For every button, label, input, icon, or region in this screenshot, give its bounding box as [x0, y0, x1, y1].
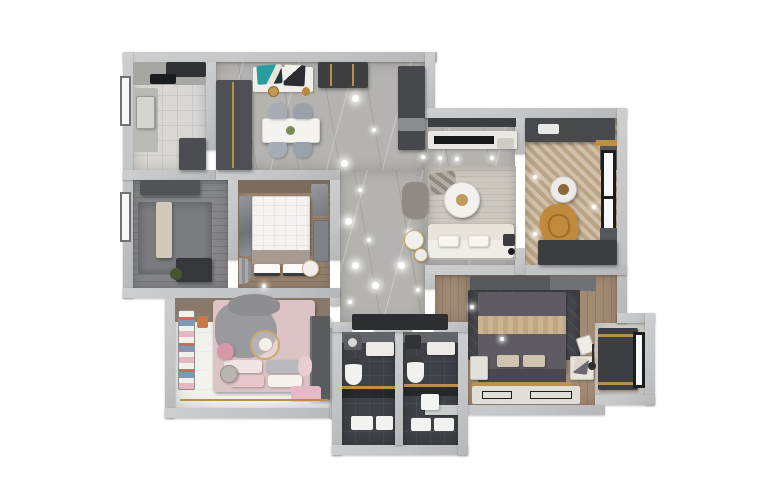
kids-toy-shelf — [178, 310, 195, 390]
spotlight-icon — [533, 232, 537, 236]
wall-living-top — [425, 108, 627, 118]
living-lamp-table — [503, 234, 515, 246]
bay-window-seat — [598, 328, 638, 390]
entry-cabinet-niche — [398, 118, 425, 131]
spotlight-icon — [470, 305, 474, 309]
bath1-mat — [376, 416, 393, 430]
wine-cabinet-trim — [232, 82, 234, 168]
kids-side-table — [220, 365, 238, 383]
wall-master-corridor — [330, 180, 340, 260]
spotlight-icon — [352, 262, 359, 269]
spotlight-icon — [262, 284, 266, 288]
top-cabinet-trim — [330, 64, 332, 86]
bath1-mat — [351, 416, 373, 430]
living-side-table-small — [414, 248, 428, 262]
wall-bath-left — [332, 322, 342, 455]
spotlight-icon — [352, 95, 359, 102]
walkway-rug-outline — [530, 391, 572, 399]
bay-lamp-stem — [592, 344, 594, 364]
bath1-shower-glass — [342, 389, 395, 398]
study-top-shelf — [140, 180, 200, 195]
spotlight-icon — [372, 282, 379, 289]
living-floor-lamp — [508, 248, 515, 255]
spotlight-icon — [533, 175, 537, 179]
master-bed — [252, 196, 310, 256]
wall-living-bedroom2 — [425, 265, 627, 275]
master-mirror-panel — [239, 196, 252, 256]
sideboard-vase — [302, 87, 310, 96]
entry-cabinet — [398, 66, 425, 150]
bath2-mat — [411, 418, 431, 431]
kids-canopy — [228, 294, 280, 316]
bedroom2-nightstand — [470, 356, 488, 380]
wall-bay-bottom — [595, 395, 655, 405]
spotlight-icon — [500, 337, 504, 341]
spotlight-icon — [358, 188, 362, 192]
master-pillow — [254, 264, 280, 276]
wall-top — [123, 52, 437, 62]
master-wardrobe — [313, 220, 329, 262]
balcony-bottom-cabinet — [538, 240, 617, 265]
wall-bedroom2-left-stub — [425, 275, 435, 289]
master-nightstand — [302, 260, 319, 277]
dining-centerpiece — [286, 126, 295, 135]
bath2-toilet — [407, 356, 424, 383]
wall-living-balcony-bottom — [515, 248, 525, 275]
spotlight-icon — [592, 205, 596, 209]
corridor-doormat — [352, 314, 448, 330]
balcony-cabinet-sink — [538, 124, 559, 134]
kids-plush-toy — [258, 337, 273, 352]
wall-study-master — [228, 180, 238, 260]
sofa-pillow — [438, 235, 459, 247]
kitchen-sink — [136, 96, 155, 129]
kids-pouf — [217, 343, 234, 360]
wall-kids-corridor-stub — [330, 298, 340, 306]
spotlight-icon — [455, 157, 459, 161]
kids-floor-trim — [180, 399, 328, 401]
kitchen-fridge — [179, 138, 206, 170]
spotlight-icon — [345, 218, 352, 225]
bath2-vanity — [427, 342, 455, 355]
spotlight-icon — [490, 156, 494, 160]
wall-bath-mid — [395, 332, 403, 445]
study-cabinet — [156, 202, 172, 258]
floor-plan-canvas — [0, 0, 780, 490]
study-plant — [170, 268, 182, 280]
wall-balcony-right — [617, 108, 627, 323]
bedroom2-bed-band — [478, 316, 566, 334]
wall-kids-left — [165, 298, 175, 418]
bedroom2-pillow — [497, 355, 519, 367]
dining-chair — [268, 103, 287, 119]
bedroom2-desk — [550, 276, 596, 291]
sofa-pillow — [468, 235, 489, 247]
bath1-sink-bowl — [348, 338, 357, 347]
living-armchair — [402, 182, 428, 218]
wall-kitchen-dining — [206, 62, 216, 150]
spotlight-icon — [341, 160, 348, 167]
wall-bath-right — [458, 322, 468, 455]
kitchen-cooktop — [150, 74, 176, 84]
wall-kids-bottom — [165, 408, 340, 418]
wall-bay-right — [645, 313, 655, 405]
sideboard-gold-tray — [268, 86, 279, 97]
sideboard-art-teal — [256, 64, 282, 85]
dining-top-cabinet — [318, 62, 368, 88]
kids-bunny-toy — [298, 356, 312, 376]
sideboard-art-dark — [283, 64, 305, 86]
spotlight-icon — [398, 262, 405, 269]
study-desk — [176, 258, 212, 282]
kitchen-window — [120, 76, 131, 126]
living-console-items — [497, 138, 514, 149]
wall-mid-horizontal — [123, 288, 340, 298]
spotlight-icon — [438, 156, 442, 160]
spotlight-icon — [367, 238, 371, 242]
bay-seat-trim — [598, 334, 638, 337]
bay-window — [633, 332, 645, 388]
master-bed-foot-band — [252, 250, 310, 264]
wall-bedroom2-bottom — [425, 405, 605, 415]
wall-bath-top-a — [332, 322, 352, 332]
bath2-mat — [434, 418, 454, 431]
living-side-table — [404, 230, 424, 250]
balcony-window-mullion — [601, 196, 616, 199]
study-window — [120, 192, 131, 242]
wall-bath-bottom — [332, 445, 468, 455]
spotlight-icon — [348, 300, 352, 304]
spotlight-icon — [421, 155, 425, 159]
dining-wine-cabinet — [216, 80, 252, 170]
dining-chair — [293, 103, 312, 119]
master-curtain — [239, 258, 251, 284]
balcony-tray — [558, 184, 569, 195]
bath2-corner-sink — [405, 335, 421, 349]
kids-picture-frame — [197, 316, 208, 328]
wall-kitchen-bottom — [123, 170, 216, 180]
master-tall-cabinet — [311, 184, 328, 216]
bath1-toilet — [345, 358, 362, 385]
bedroom2-headboard — [478, 369, 566, 382]
bath1-vanity — [366, 342, 394, 356]
top-cabinet-trim2 — [352, 64, 354, 86]
bay-seat-trim — [598, 382, 638, 385]
bedroom2-pillow — [523, 355, 545, 367]
coffee-table-decor — [456, 194, 468, 206]
wall-dining-master — [216, 170, 340, 180]
spotlight-icon — [416, 288, 420, 292]
walkway-rug-outline — [482, 391, 512, 399]
living-tv — [434, 136, 494, 144]
spotlight-icon — [372, 128, 376, 132]
living-media-wall — [428, 118, 516, 127]
bath2-white-cabinet — [421, 394, 439, 410]
nightstand-art — [573, 357, 589, 375]
balcony-sill-top — [596, 140, 617, 146]
